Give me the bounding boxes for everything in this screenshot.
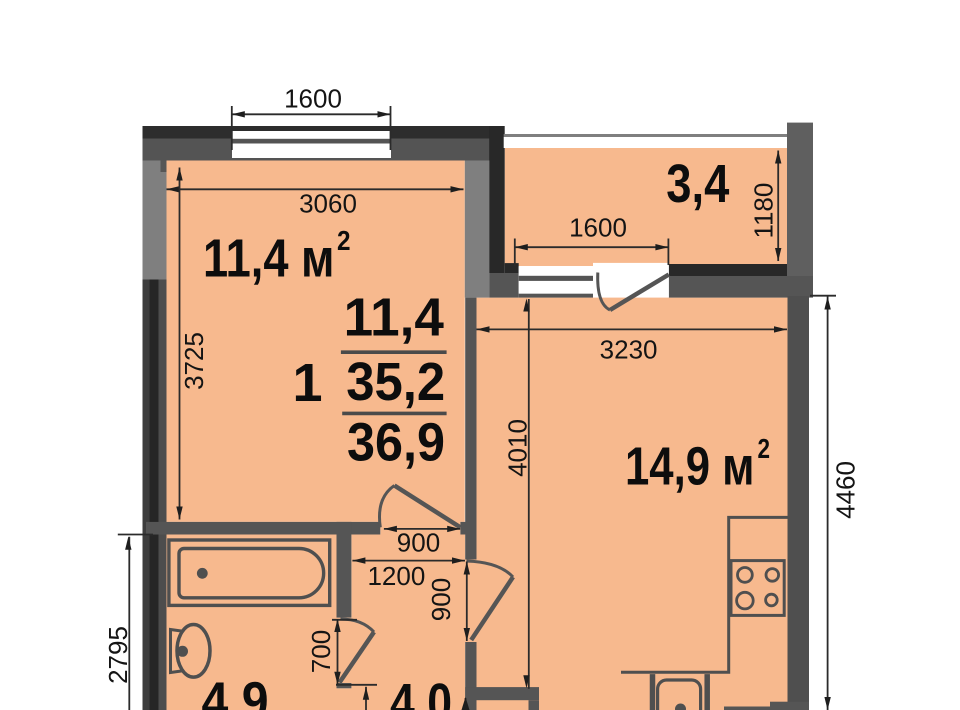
svg-text:4460: 4460 xyxy=(830,461,860,519)
svg-text:14,9 м: 14,9 м xyxy=(625,437,755,497)
svg-text:1200: 1200 xyxy=(367,561,425,591)
svg-text:1600: 1600 xyxy=(569,213,627,243)
svg-text:3,4: 3,4 xyxy=(666,154,729,214)
svg-text:700: 700 xyxy=(306,630,336,673)
svg-text:36,9: 36,9 xyxy=(347,412,445,472)
svg-text:4,9: 4,9 xyxy=(202,672,269,710)
svg-text:2: 2 xyxy=(337,225,351,256)
svg-text:4010: 4010 xyxy=(502,419,532,477)
svg-text:3060: 3060 xyxy=(299,189,357,219)
svg-text:3230: 3230 xyxy=(600,334,658,364)
svg-text:11,4 м: 11,4 м xyxy=(203,229,335,289)
svg-text:900: 900 xyxy=(397,528,440,558)
svg-text:11,4: 11,4 xyxy=(344,288,444,348)
svg-text:900: 900 xyxy=(426,578,456,621)
svg-text:35,2: 35,2 xyxy=(346,352,445,412)
svg-text:1180: 1180 xyxy=(748,183,778,239)
svg-text:2: 2 xyxy=(758,433,771,464)
svg-text:2795: 2795 xyxy=(103,626,133,684)
svg-text:1600: 1600 xyxy=(284,84,342,114)
svg-text:1: 1 xyxy=(292,353,322,413)
svg-text:3725: 3725 xyxy=(179,332,209,390)
svg-text:4,0: 4,0 xyxy=(390,673,452,710)
